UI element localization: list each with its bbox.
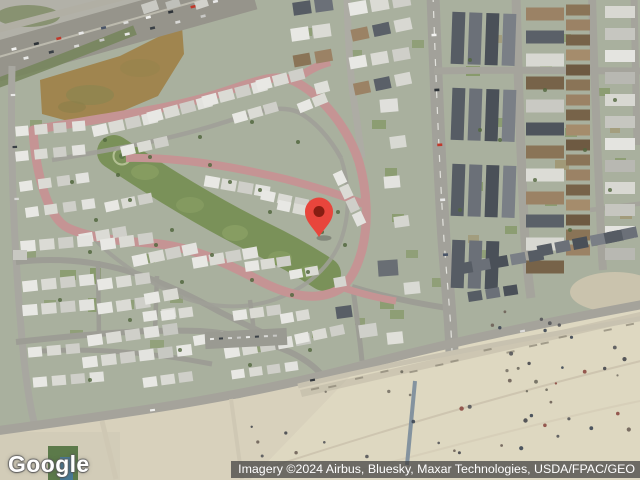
building bbox=[28, 346, 43, 357]
beachgoer-dot bbox=[589, 426, 593, 430]
attribution-text: Imagery ©2024 Airbus, Bluesky, Maxar Tec… bbox=[238, 462, 635, 476]
beachgoer-dot bbox=[519, 446, 523, 450]
building bbox=[451, 12, 466, 64]
parked-car bbox=[219, 337, 223, 339]
building bbox=[53, 146, 67, 157]
building bbox=[62, 201, 76, 213]
lawn bbox=[406, 250, 418, 258]
building bbox=[358, 323, 378, 338]
building bbox=[502, 14, 517, 66]
debris-dot bbox=[387, 390, 390, 393]
beachgoer-dot bbox=[504, 310, 507, 313]
beachgoer-dot bbox=[558, 323, 561, 326]
circ bbox=[613, 98, 617, 102]
beachgoer-dot bbox=[323, 441, 326, 444]
circ bbox=[148, 155, 152, 159]
building bbox=[13, 250, 27, 260]
building bbox=[160, 309, 175, 321]
building bbox=[379, 98, 398, 113]
building bbox=[124, 328, 140, 341]
parked-car bbox=[273, 335, 277, 337]
circ bbox=[296, 140, 300, 144]
building bbox=[526, 146, 564, 159]
street bbox=[98, 261, 99, 338]
building bbox=[284, 361, 298, 372]
building bbox=[79, 299, 95, 311]
building bbox=[403, 281, 420, 295]
building bbox=[605, 182, 635, 194]
lawn bbox=[131, 164, 159, 180]
building bbox=[335, 305, 353, 319]
circ bbox=[306, 270, 310, 274]
circ bbox=[543, 88, 547, 92]
building bbox=[377, 259, 398, 276]
beachgoer-dot bbox=[284, 431, 287, 434]
building bbox=[605, 160, 635, 172]
circ bbox=[116, 173, 120, 177]
building bbox=[143, 326, 159, 339]
building bbox=[97, 302, 113, 315]
building bbox=[178, 371, 193, 383]
avenue-car bbox=[431, 34, 436, 37]
building bbox=[231, 369, 245, 380]
building bbox=[605, 248, 635, 260]
building bbox=[39, 238, 55, 250]
lawn bbox=[372, 120, 386, 129]
circ bbox=[94, 218, 98, 222]
circ bbox=[250, 278, 254, 282]
beachgoer-dot bbox=[294, 451, 297, 454]
building bbox=[178, 307, 193, 319]
beachgoer-dot bbox=[561, 366, 564, 369]
circ bbox=[468, 58, 472, 62]
building bbox=[605, 50, 635, 62]
building bbox=[19, 180, 33, 192]
building bbox=[566, 20, 590, 31]
building bbox=[60, 276, 76, 289]
debris-dot bbox=[325, 391, 327, 393]
circ bbox=[478, 128, 482, 132]
dirt-patch bbox=[120, 59, 160, 77]
building bbox=[267, 364, 281, 375]
building bbox=[52, 375, 67, 386]
beachgoer-dot bbox=[523, 418, 527, 422]
building bbox=[451, 88, 466, 140]
circ bbox=[228, 180, 232, 184]
beachgoer-dot bbox=[543, 329, 546, 332]
cross-street bbox=[434, 70, 640, 71]
beachgoer-dot bbox=[261, 455, 264, 458]
building bbox=[137, 232, 153, 245]
debris-dot bbox=[517, 367, 520, 370]
circ bbox=[250, 120, 254, 124]
beachgoer-dot bbox=[540, 318, 543, 321]
parked-car bbox=[14, 198, 19, 200]
building bbox=[60, 301, 76, 313]
building bbox=[160, 374, 175, 386]
building bbox=[526, 100, 564, 113]
building bbox=[605, 116, 635, 128]
building bbox=[312, 23, 332, 38]
beachgoer-dot bbox=[468, 405, 472, 409]
beachgoer-dot bbox=[567, 417, 570, 420]
parked-car bbox=[11, 94, 16, 96]
circ bbox=[533, 178, 537, 182]
map-attribution: Imagery ©2024 Airbus, Bluesky, Maxar Tec… bbox=[231, 461, 640, 478]
building bbox=[526, 8, 564, 21]
building bbox=[566, 215, 590, 226]
building bbox=[605, 28, 635, 40]
debris-dot bbox=[534, 380, 538, 384]
debris-dot bbox=[400, 370, 403, 373]
beachgoer-dot bbox=[530, 414, 533, 417]
building bbox=[53, 122, 67, 133]
circ bbox=[88, 250, 92, 254]
avenue-car bbox=[437, 143, 442, 146]
beachgoer-dot bbox=[550, 401, 553, 404]
circ bbox=[103, 138, 107, 142]
debris-dot bbox=[545, 388, 548, 391]
building bbox=[566, 185, 590, 196]
avenue-car bbox=[434, 88, 439, 91]
building bbox=[502, 90, 517, 142]
building bbox=[605, 72, 635, 84]
building bbox=[526, 261, 564, 274]
debris-dot bbox=[526, 390, 528, 392]
building bbox=[70, 373, 85, 384]
parked-car bbox=[264, 335, 268, 337]
circ bbox=[208, 163, 212, 167]
building bbox=[566, 5, 590, 16]
building bbox=[75, 172, 89, 184]
beachgoer-dot bbox=[556, 435, 559, 438]
circ bbox=[210, 253, 214, 257]
building bbox=[58, 237, 74, 249]
circ bbox=[258, 188, 262, 192]
building bbox=[605, 6, 635, 18]
building bbox=[468, 12, 483, 64]
parked-car bbox=[13, 146, 18, 148]
building bbox=[566, 65, 590, 76]
building bbox=[566, 200, 590, 211]
beachgoer-dot bbox=[543, 424, 547, 428]
circ bbox=[248, 363, 252, 367]
beachgoer-dot bbox=[458, 451, 461, 454]
avenue-car bbox=[440, 198, 445, 201]
circ bbox=[290, 293, 294, 297]
building bbox=[41, 302, 57, 314]
building bbox=[605, 204, 635, 216]
building bbox=[138, 349, 154, 362]
building bbox=[100, 238, 116, 251]
lawn bbox=[150, 340, 164, 348]
beachgoer-dot bbox=[498, 326, 501, 329]
building bbox=[116, 275, 132, 288]
beachgoer-dot bbox=[251, 426, 253, 428]
building bbox=[485, 13, 500, 65]
circ bbox=[154, 243, 158, 247]
circ bbox=[458, 208, 462, 212]
google-logo[interactable]: Google bbox=[8, 453, 90, 476]
building bbox=[566, 110, 590, 121]
building bbox=[566, 155, 590, 166]
building bbox=[292, 0, 312, 15]
circ bbox=[70, 180, 74, 184]
building bbox=[526, 31, 564, 44]
building bbox=[566, 35, 590, 46]
building bbox=[101, 353, 117, 366]
circ bbox=[583, 148, 587, 152]
beachgoer-dot bbox=[527, 362, 530, 365]
building bbox=[260, 258, 275, 270]
building bbox=[526, 54, 564, 67]
building bbox=[485, 89, 500, 141]
building bbox=[566, 80, 590, 91]
building bbox=[485, 165, 500, 217]
circ bbox=[268, 210, 272, 214]
building bbox=[451, 164, 466, 216]
beachgoer-dot bbox=[509, 352, 513, 356]
building bbox=[72, 120, 86, 131]
circ bbox=[336, 210, 340, 214]
circ bbox=[88, 378, 92, 382]
building bbox=[65, 343, 80, 354]
building bbox=[157, 346, 173, 359]
circ bbox=[170, 228, 174, 232]
beachgoer-dot bbox=[437, 442, 440, 445]
building bbox=[15, 150, 29, 161]
beachgoer-dot bbox=[548, 321, 552, 325]
building bbox=[526, 123, 564, 136]
building bbox=[56, 175, 70, 187]
building bbox=[25, 206, 39, 218]
building bbox=[34, 124, 48, 135]
building bbox=[34, 148, 48, 159]
building bbox=[526, 77, 564, 90]
dirt-patch bbox=[58, 101, 86, 113]
beachgoer-dot bbox=[365, 455, 369, 459]
circ bbox=[180, 280, 184, 284]
building bbox=[41, 278, 57, 291]
building bbox=[82, 356, 98, 369]
building bbox=[566, 125, 590, 136]
building bbox=[47, 345, 62, 356]
building bbox=[566, 50, 590, 61]
building bbox=[119, 235, 135, 248]
beachgoer-dot bbox=[453, 449, 456, 452]
building bbox=[162, 323, 178, 336]
building bbox=[232, 309, 247, 321]
building bbox=[526, 215, 564, 228]
building bbox=[290, 26, 310, 41]
beachgoer-dot bbox=[555, 382, 557, 384]
parked-car bbox=[228, 337, 232, 339]
building bbox=[142, 310, 157, 322]
building bbox=[249, 366, 263, 377]
beachgoer-dot bbox=[459, 406, 463, 410]
building bbox=[393, 215, 409, 228]
circ bbox=[128, 318, 132, 322]
building bbox=[468, 164, 483, 216]
building bbox=[120, 351, 136, 364]
building bbox=[134, 272, 150, 285]
building bbox=[22, 280, 38, 293]
beachgoer-dot bbox=[570, 336, 573, 339]
beachgoer-dot bbox=[256, 440, 259, 443]
beachgoer-dot bbox=[627, 427, 631, 431]
building bbox=[605, 94, 635, 106]
building bbox=[386, 331, 403, 345]
beachgoer-dot bbox=[622, 357, 626, 361]
building bbox=[502, 166, 517, 218]
building bbox=[81, 198, 95, 210]
beachgoer-dot bbox=[613, 346, 617, 350]
building bbox=[389, 135, 407, 149]
beachgoer-dot bbox=[412, 420, 416, 424]
lawn bbox=[390, 310, 404, 319]
beachgoer-dot bbox=[616, 412, 620, 416]
lawn bbox=[412, 40, 424, 48]
map-viewport[interactable]: Google Imagery ©2024 Airbus, Bluesky, Ma… bbox=[0, 0, 640, 480]
building bbox=[526, 192, 564, 205]
building bbox=[87, 334, 103, 347]
parked-car bbox=[246, 336, 250, 338]
circ bbox=[308, 348, 312, 352]
building bbox=[266, 304, 281, 316]
lawn bbox=[222, 225, 248, 241]
building bbox=[566, 170, 590, 181]
circ bbox=[198, 135, 202, 139]
lawn bbox=[505, 226, 517, 234]
building bbox=[249, 307, 264, 319]
building bbox=[333, 276, 347, 288]
beachgoer-dot bbox=[508, 379, 512, 383]
debris-dot bbox=[505, 369, 508, 372]
building bbox=[77, 235, 93, 247]
parked-car bbox=[255, 336, 259, 338]
building bbox=[384, 175, 401, 188]
building bbox=[44, 203, 58, 215]
building bbox=[526, 169, 564, 182]
circ bbox=[58, 298, 62, 302]
circ bbox=[178, 348, 182, 352]
building bbox=[468, 88, 483, 140]
circ bbox=[568, 228, 572, 232]
avenue-car bbox=[443, 253, 448, 256]
satellite-imagery[interactable] bbox=[0, 0, 640, 480]
building bbox=[142, 376, 157, 388]
building bbox=[79, 274, 95, 287]
beachgoer-dot bbox=[500, 444, 503, 447]
beachgoer-dot bbox=[583, 370, 587, 374]
lawn bbox=[385, 168, 397, 177]
building bbox=[106, 331, 122, 344]
debris-dot bbox=[616, 374, 618, 376]
building bbox=[38, 177, 52, 189]
pin-inner-dot bbox=[314, 206, 325, 217]
debris-dot bbox=[409, 394, 412, 397]
building bbox=[244, 260, 259, 272]
circ bbox=[498, 138, 502, 142]
building bbox=[97, 278, 113, 291]
beachgoer-dot bbox=[603, 367, 606, 370]
circ bbox=[128, 198, 132, 202]
circ bbox=[343, 243, 347, 247]
building bbox=[72, 144, 86, 155]
beachgoer-dot bbox=[491, 324, 494, 327]
circ bbox=[608, 188, 612, 192]
building bbox=[566, 95, 590, 106]
building bbox=[15, 125, 29, 136]
building bbox=[116, 299, 132, 312]
building bbox=[33, 376, 48, 387]
parked-car bbox=[210, 338, 214, 340]
building bbox=[605, 138, 635, 150]
building bbox=[22, 304, 38, 316]
lawn bbox=[176, 197, 204, 213]
building bbox=[276, 256, 291, 268]
parked-car bbox=[237, 336, 241, 338]
